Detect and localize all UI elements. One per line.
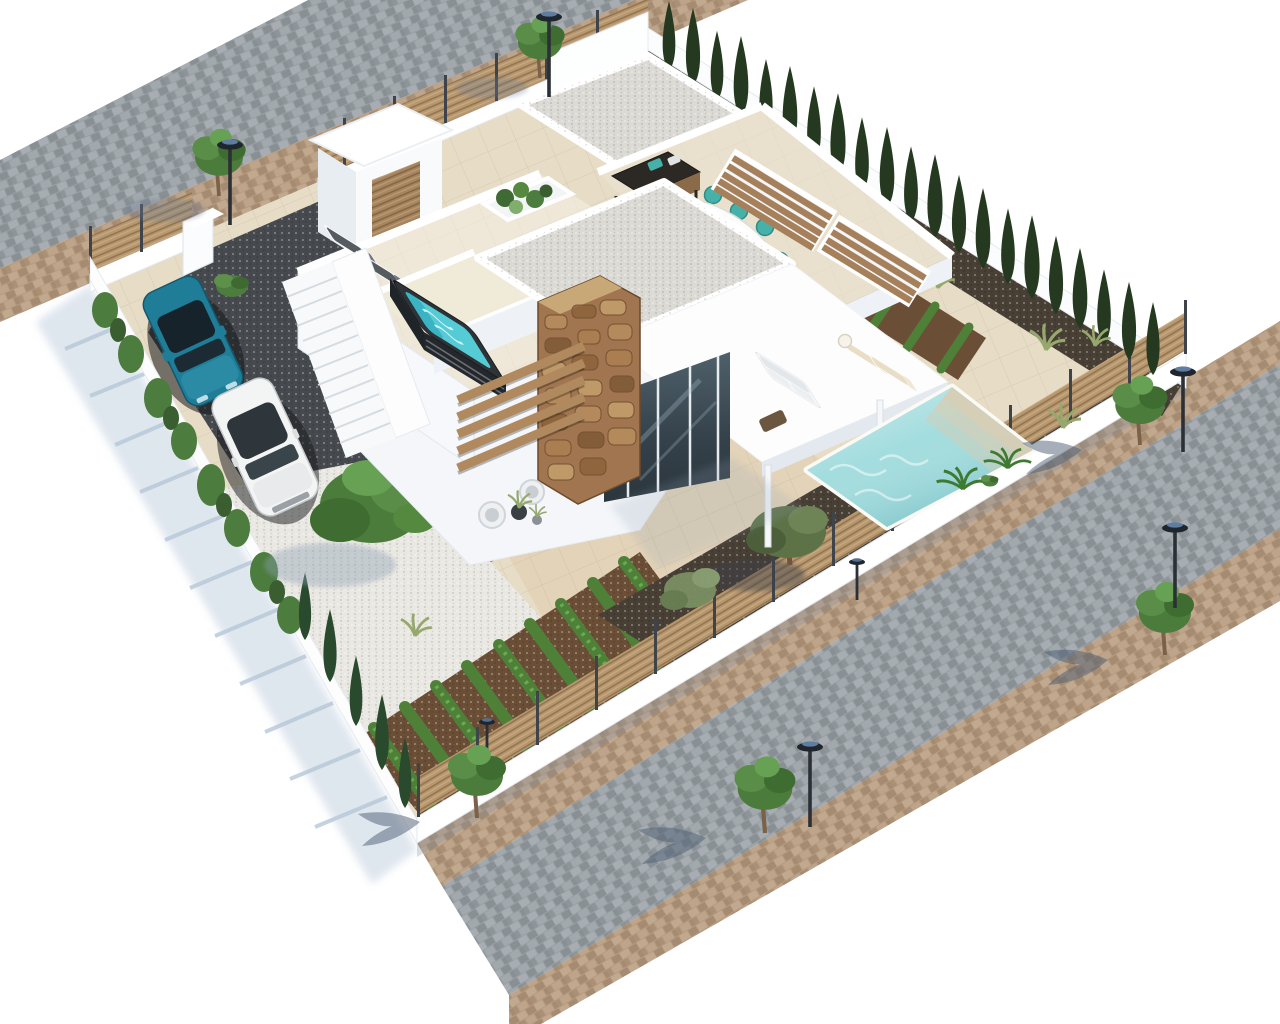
- pool-side-table: [839, 335, 852, 348]
- render-canvas: [0, 0, 1280, 1024]
- villa-aerial-render: [0, 0, 1280, 1024]
